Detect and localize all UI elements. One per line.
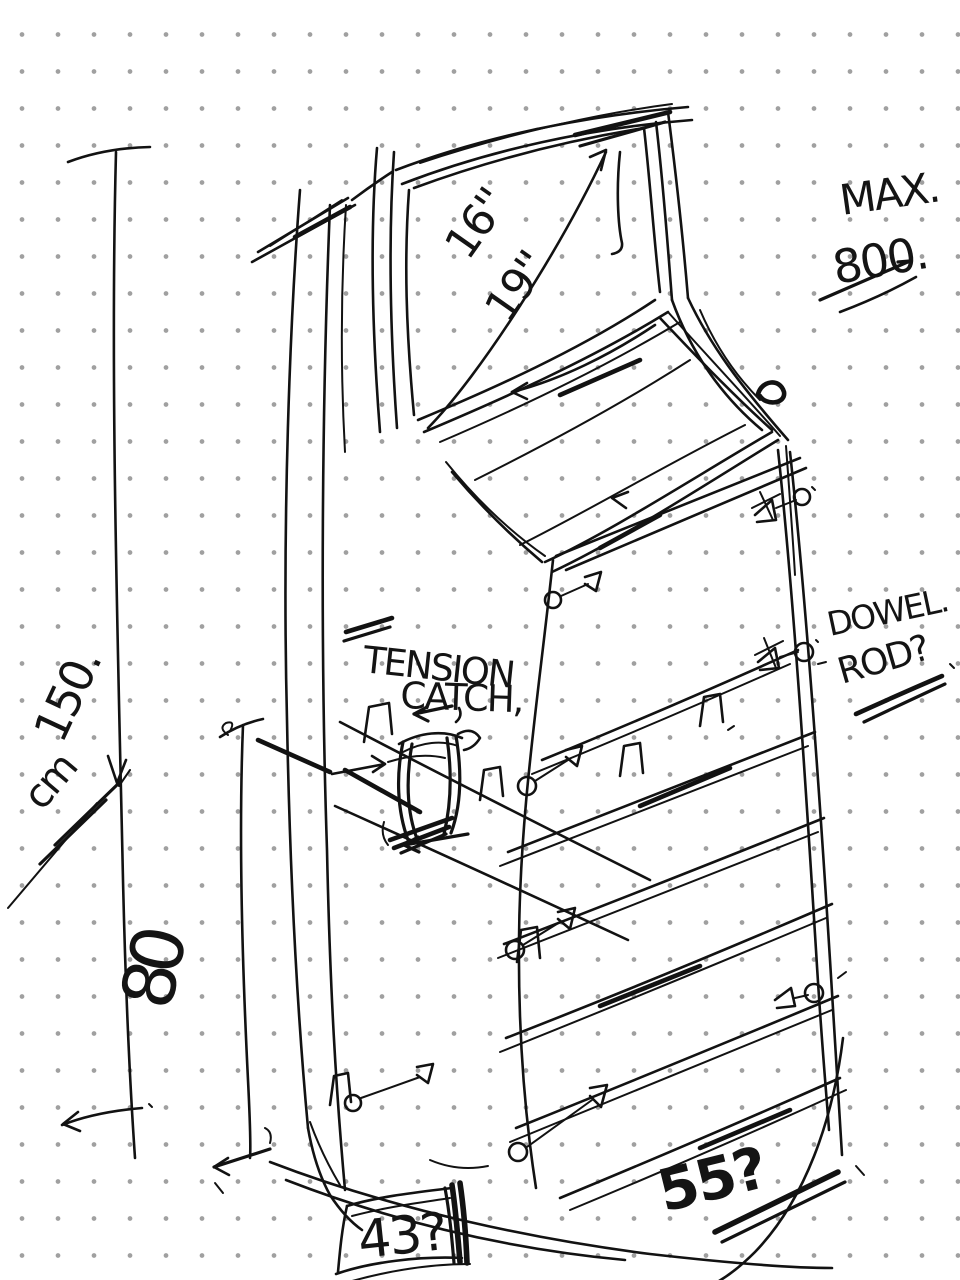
screen-diagonal-secondary-label: 19'' (475, 243, 558, 331)
max-note: MAX. 800. (820, 163, 942, 312)
sketch-page: 150. cm 80 (0, 0, 960, 1280)
base-width-label: 43? (355, 1202, 449, 1271)
monitor-right-side (656, 112, 788, 440)
dimension-line-80: 80 (104, 719, 270, 1193)
monitor-sketch: 16'' 19'' (373, 104, 692, 442)
max-label: MAX. (837, 163, 942, 225)
max-value: 800. (829, 225, 931, 295)
clip-brackets (330, 694, 734, 1105)
mid-height-label: 80 (104, 922, 202, 1016)
height-value-label: 150. (23, 641, 112, 749)
dowel-screw-symbols (345, 487, 846, 1161)
base-box-note: 43? (336, 1183, 470, 1280)
dowel-label-1: DOWEL. (824, 580, 951, 643)
height-unit-label: cm (14, 745, 86, 818)
screen-diagonal-primary-label: 16'' (435, 180, 518, 268)
dowel-note: DOWEL. ROD? (824, 580, 954, 722)
sketch-canvas[interactable]: 150. cm 80 (0, 0, 960, 1280)
depth-note: 55? (651, 1133, 864, 1242)
dimension-line-150cm: 150. cm (8, 147, 152, 1158)
